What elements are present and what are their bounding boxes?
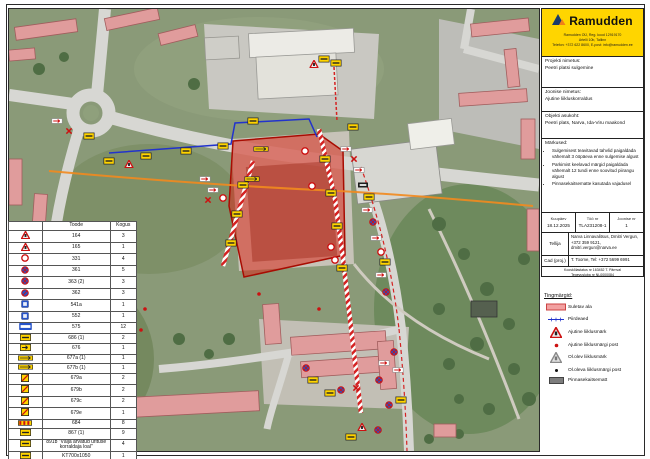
qty-cell: 1 (110, 311, 136, 323)
legend: Tingmärgid: Suletav alaPiirdeaedAjutine … (544, 293, 646, 389)
qty-cell: 3 (110, 231, 136, 243)
product-cell: 552 (42, 311, 110, 323)
qty-cell: 9 (110, 429, 136, 440)
table-row: 57512 (9, 323, 137, 334)
product-cell: 165 (42, 242, 110, 254)
client-value: Narva Linnavalitsus, Dmitri Vergun, +372… (569, 233, 643, 255)
qty-cell: 1 (110, 364, 136, 374)
stripebar-sign-icon (9, 419, 43, 429)
ybar-sign-icon (9, 354, 43, 364)
notes-label: Märkused: (545, 141, 640, 147)
drawing-value: Ajutine liikluskorraldus (545, 97, 640, 103)
tri-sign-icon (9, 242, 43, 254)
qty-cell: 2 (110, 373, 136, 385)
nopark-sign-icon (9, 288, 43, 300)
table-row: 686 (1)2 (9, 333, 137, 344)
date-cell: Kuupäev 18.12.2025 (542, 213, 576, 232)
cad-box: Cad (proj.) T. Toome, Tel: +372 5699 699… (541, 256, 644, 267)
table-row: 677b (1)1 (9, 364, 137, 374)
table-row: 1651 (9, 242, 137, 254)
ysq-sign-icon (9, 385, 43, 397)
ysq-sign-icon (9, 396, 43, 408)
product-cell: 677a (1) (42, 354, 110, 364)
cad-label: Cad (proj.) (542, 256, 569, 266)
product-cell: 686 (1) (42, 333, 110, 344)
qty-cell: 12 (110, 323, 136, 334)
title-block: Ramudden Ramudden OÜ, Reg. kood 12919170… (541, 8, 644, 277)
ramudden-logo-icon (552, 14, 566, 29)
ybar-sign-icon (9, 364, 43, 374)
dot-black-legend-icon (544, 368, 568, 373)
sheet-number-value: 1 (611, 223, 642, 229)
roundabout (73, 95, 109, 131)
area-legend-icon (544, 303, 568, 311)
nostop-sign-icon (9, 265, 43, 277)
bluewide-sign-icon (9, 323, 43, 334)
table-row: 363 (2)3 (9, 277, 137, 289)
product-cell: 362 (42, 288, 110, 300)
work-number-cell: Töö nr TLA231208-1 (576, 213, 610, 232)
table-row: 679e1 (9, 408, 137, 420)
qty-cell: 3 (110, 277, 136, 289)
table-row: 679c2 (9, 396, 137, 408)
location-value: Peetri plats, Narva, Ida-Viru maakond (545, 121, 640, 127)
date-label: Kuupäev (543, 216, 574, 221)
approval-footnote: Tegevusluba nr NL0000084 (543, 273, 642, 278)
bluerect-sign-icon (9, 311, 43, 323)
product-cell: 891b "Välja arvatud ürituse korraldaja l… (42, 439, 110, 451)
table-row: 891b "Välja arvatud ürituse korraldaja l… (9, 439, 137, 451)
company-contact: Ramudden OÜ, Reg. kood 12919170Artelli 1… (544, 33, 641, 48)
table-row: 541a1 (9, 300, 137, 312)
legend-item-label: Pinnasekaitsematt (568, 378, 607, 383)
bluerect-sign-icon (9, 300, 43, 312)
meta-box: Kuupäev 18.12.2025 Töö nr TLA231208-1 Jo… (541, 213, 644, 233)
note-item: Pinnasekaitsematte kasutada vajadusel (552, 181, 640, 187)
mat-legend-icon (544, 377, 568, 384)
legend-item-label: Ol.oleva liiklusmärgi post (568, 368, 621, 373)
qty-cell: 1 (110, 354, 136, 364)
product-cell: 164 (42, 231, 110, 243)
legend-item: Ol.olev liiklusmärk (544, 352, 646, 363)
product-cell: 361 (42, 265, 110, 277)
company-contact-line: Telefon: +372 622 8600, E-post: info@ram… (544, 43, 641, 48)
legend-item-label: Suletav ala (568, 305, 592, 310)
legend-item: Ol.oleva liiklusmärgi post (544, 368, 646, 373)
yplate-sign-icon (9, 333, 43, 344)
legend-title: Tingmärgid: (544, 293, 646, 299)
product-cell: 677b (1) (42, 364, 110, 374)
ysq-sign-icon (9, 408, 43, 420)
fence-legend-icon (544, 316, 568, 323)
work-number-value: TLA231208-1 (577, 223, 608, 229)
product-cell: 363 (2) (42, 277, 110, 289)
table-row: 679a2 (9, 373, 137, 385)
table-row: 677a (1)1 (9, 354, 137, 364)
client-box: Tellija Narva Linnavalitsus, Dmitri Verg… (541, 233, 644, 256)
tri-legend-icon (544, 327, 568, 338)
qty-cell: 3 (110, 288, 136, 300)
qty-cell: 1 (110, 300, 136, 312)
legend-item: Suletav ala (544, 303, 646, 311)
legend-item: Piirdeaed (544, 316, 646, 323)
yplate-sign-icon (9, 451, 43, 459)
legend-item: Ajutine liiklusmärk (544, 327, 646, 338)
qty-column-header: Kogus (110, 222, 136, 231)
legend-item-label: Piirdeaed (568, 317, 588, 322)
table-row: 6848 (9, 419, 137, 429)
yplate-sign-icon (9, 439, 43, 451)
product-cell: 679b (42, 385, 110, 397)
approval-footnotes: Kooskõlastatus nr 163452 T. PärnvalTegev… (541, 267, 644, 277)
product-cell: 676 (42, 344, 110, 355)
qty-cell: 8 (110, 419, 136, 429)
qty-cell: 1 (110, 344, 136, 355)
qty-cell: 1 (110, 242, 136, 254)
table-row: 3623 (9, 288, 137, 300)
ysq-sign-icon (9, 373, 43, 385)
table-row: 5521 (9, 311, 137, 323)
legend-item-label: Ajutine liiklusmärgi post (568, 343, 618, 348)
product-cell: 867 (1) (42, 429, 110, 440)
table-row: 1643 (9, 231, 137, 243)
location-label: Objekti asukoht: (545, 114, 640, 120)
product-column-header: Toode (42, 222, 110, 231)
tri-gray-legend-icon (544, 352, 568, 363)
table-row: 867 (1)9 (9, 429, 137, 440)
table-header-row: Toode Kogus (9, 222, 137, 231)
project-name-box: Projekti nimetus: Peetri platsi sulgemin… (541, 57, 644, 88)
table-row: 679b2 (9, 385, 137, 397)
legend-item: Pinnasekaitsematt (544, 377, 646, 384)
date-value: 18.12.2025 (543, 223, 574, 229)
legend-item-label: Ajutine liiklusmärk (568, 330, 606, 335)
company-box: Ramudden Ramudden OÜ, Reg. kood 12919170… (541, 8, 644, 57)
note-item: Parkimist keelavad märgid paigaldada väh… (552, 162, 640, 180)
qty-cell: 4 (110, 439, 136, 451)
product-cell: 331 (42, 254, 110, 266)
dot-red-legend-icon (544, 343, 568, 348)
table-row: 3314 (9, 254, 137, 266)
qty-cell: 2 (110, 385, 136, 397)
cad-value: T. Toome, Tel: +372 5699 6991 (569, 256, 643, 266)
qty-cell: 2 (110, 333, 136, 344)
yarrow-sign-icon (9, 344, 43, 355)
qty-cell: 4 (110, 254, 136, 266)
ring-sign-icon (9, 254, 43, 266)
product-cell: 684 (42, 419, 110, 429)
traffic-plan-sheet: Toode Kogus 1643165133143615363 (2)33623… (0, 0, 650, 459)
table-row: 6761 (9, 344, 137, 355)
icon-column-header (9, 222, 43, 231)
product-cell: KT700x1050 (42, 451, 110, 459)
sign-quantity-table: Toode Kogus 1643165133143615363 (2)33623… (8, 221, 137, 459)
product-cell: 541a (42, 300, 110, 312)
object-location-box: Objekti asukoht: Peetri plats, Narva, Id… (541, 112, 644, 139)
client-label: Tellija (542, 233, 569, 255)
drawing-label: Joonise nimetus: (545, 90, 640, 96)
project-value: Peetri platsi sulgemine (545, 66, 640, 72)
sheet-number-cell: Joonise nr 1 (610, 213, 643, 232)
work-number-label: Töö nr (577, 216, 608, 221)
nostop-sign-icon (9, 277, 43, 289)
product-cell: 575 (42, 323, 110, 334)
table-row: KT700x10501 (9, 451, 137, 459)
qty-cell: 1 (110, 451, 136, 459)
note-item: Sulgemisest teavitavad tahvlid paigaldad… (552, 148, 640, 160)
qty-cell: 1 (110, 408, 136, 420)
product-cell: 679c (42, 396, 110, 408)
sheet-number-label: Joonise nr (611, 216, 642, 221)
legend-item-label: Ol.olev liiklusmärk (568, 355, 607, 360)
closure-area (229, 134, 345, 277)
notes-box: Märkused: Sulgemisest teavitavad tahvlid… (541, 139, 644, 213)
notes-list: Sulgemisest teavitavad tahvlid paigaldad… (552, 148, 640, 187)
qty-cell: 5 (110, 265, 136, 277)
drawing-name-box: Joonise nimetus: Ajutine liikluskorraldu… (541, 88, 644, 112)
tri-sign-icon (9, 231, 43, 243)
project-label: Projekti nimetus: (545, 59, 640, 65)
qty-cell: 2 (110, 396, 136, 408)
product-cell: 679a (42, 373, 110, 385)
company-name: Ramudden (569, 14, 633, 30)
legend-item: Ajutine liiklusmärgi post (544, 343, 646, 348)
product-cell: 679e (42, 408, 110, 420)
yplate-sign-icon (9, 429, 43, 440)
table-row: 3615 (9, 265, 137, 277)
